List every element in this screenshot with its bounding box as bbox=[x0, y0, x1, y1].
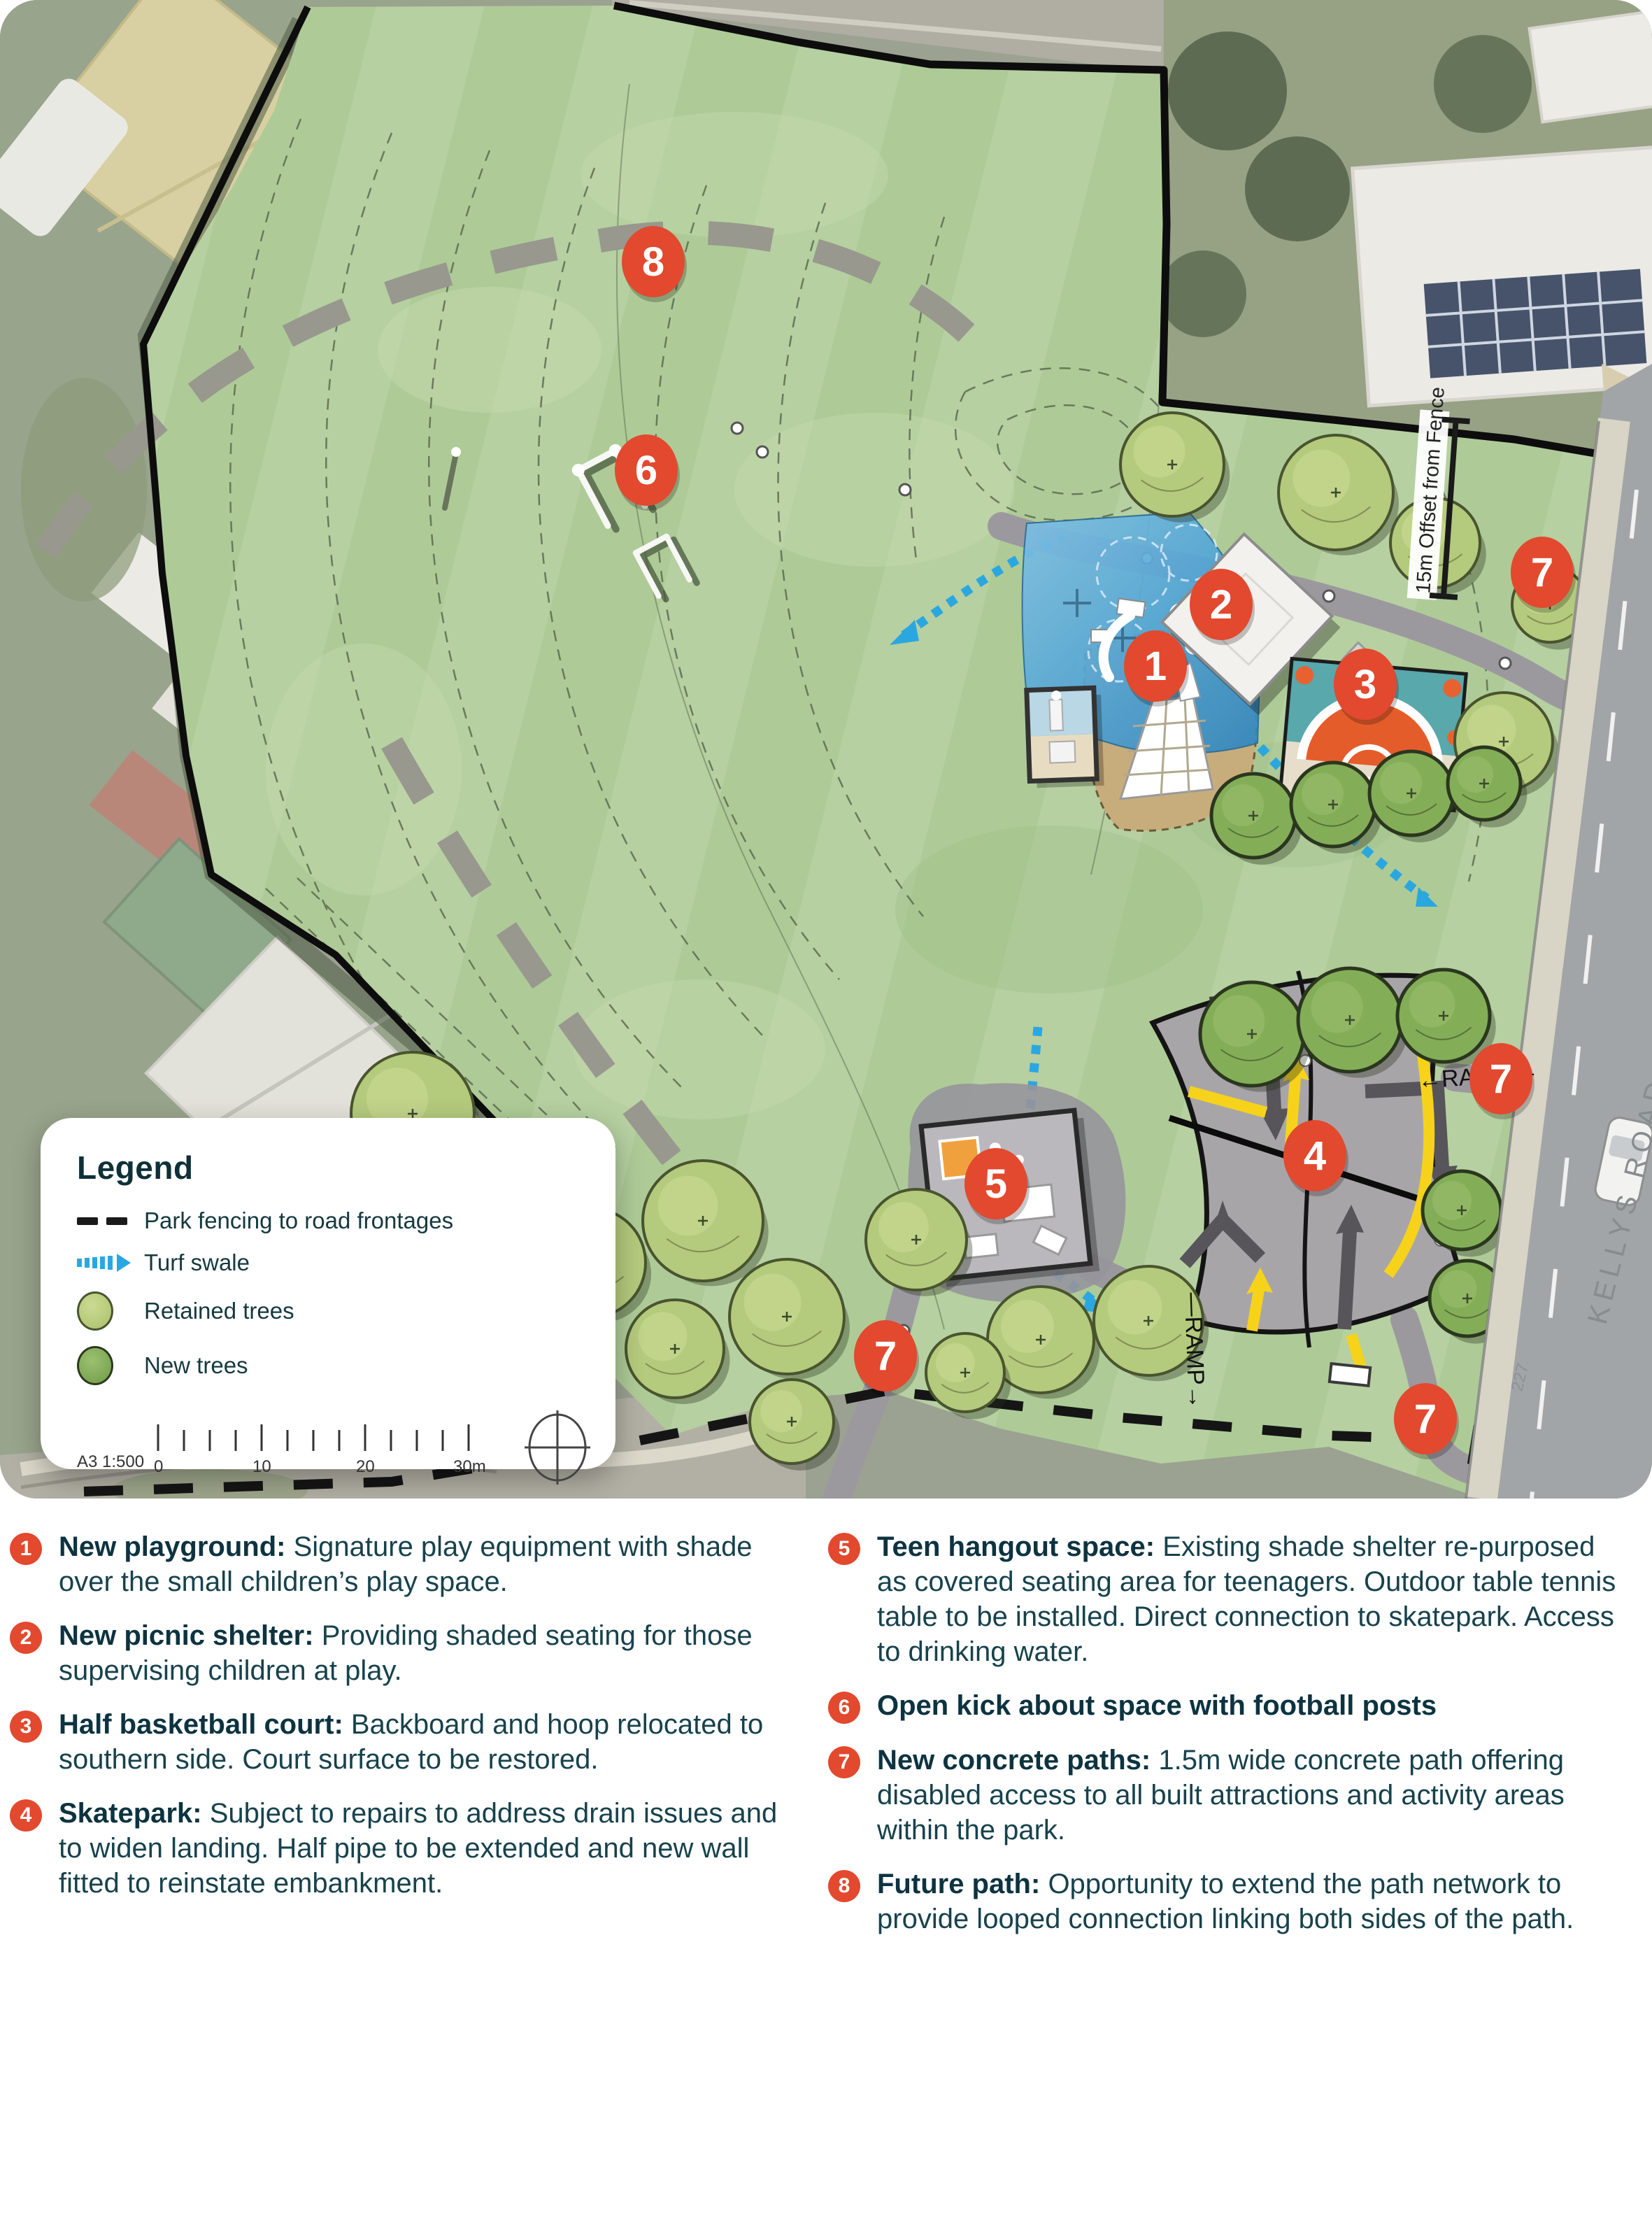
legend-item-swale: Turf swale bbox=[77, 1249, 615, 1276]
scale-ruler: 0 10 20 30m bbox=[151, 1422, 501, 1476]
key-item-6: 6 Open kick about space with football po… bbox=[828, 1688, 1642, 1724]
key-item-7: 7 New concrete paths: 1.5m wide concrete… bbox=[828, 1743, 1642, 1848]
north-compass-icon bbox=[519, 1409, 596, 1486]
key-text-4: Skatepark: Subject to repairs to address… bbox=[59, 1796, 800, 1901]
key-column-right: 5 Teen hangout space: Existing shade she… bbox=[817, 1529, 1642, 1955]
svg-text:0: 0 bbox=[154, 1457, 163, 1476]
key-item-5: 5 Teen hangout space: Existing shade she… bbox=[828, 1529, 1642, 1669]
scale-bar: A3 1:500 0 10 20 30m bbox=[77, 1409, 615, 1476]
key-item-4: 4 Skatepark: Subject to repairs to addre… bbox=[10, 1796, 817, 1901]
svg-text:10: 10 bbox=[252, 1457, 271, 1476]
swale-arrow-icon bbox=[77, 1254, 144, 1272]
key-bullet-1: 1 bbox=[10, 1533, 42, 1565]
svg-text:20: 20 bbox=[356, 1457, 375, 1476]
key-bullet-5: 5 bbox=[828, 1533, 860, 1565]
key-item-2: 2 New picnic shelter: Providing shaded s… bbox=[10, 1618, 817, 1688]
key-text-8: Future path: Opportunity to extend the p… bbox=[877, 1867, 1618, 1936]
legend-item-fencing: Park fencing to road frontages bbox=[77, 1207, 615, 1234]
key-text-1: New playground: Signature play equipment… bbox=[59, 1529, 800, 1599]
ramp-label-down: —RAMP→ bbox=[1179, 1292, 1210, 1409]
svg-text:3: 3 bbox=[1354, 662, 1376, 707]
existing-play-shelter bbox=[1027, 688, 1104, 788]
key-section: 1 New playground: Signature play equipme… bbox=[0, 1504, 1652, 1955]
key-bullet-4: 4 bbox=[10, 1799, 42, 1832]
svg-text:6: 6 bbox=[635, 448, 657, 493]
key-bullet-8: 8 bbox=[828, 1870, 860, 1902]
key-bullet-2: 2 bbox=[10, 1622, 42, 1654]
svg-text:5: 5 bbox=[985, 1161, 1007, 1207]
key-text-5: Teen hangout space: Existing shade shelt… bbox=[877, 1529, 1618, 1669]
svg-text:2: 2 bbox=[1210, 582, 1232, 628]
svg-text:7: 7 bbox=[1490, 1056, 1512, 1102]
svg-text:4: 4 bbox=[1304, 1133, 1326, 1179]
key-column-left: 1 New playground: Signature play equipme… bbox=[0, 1529, 817, 1955]
svg-text:8: 8 bbox=[642, 239, 664, 285]
masterplan-map: KELLYS ROAD 227 15m Offset from Fence ←R… bbox=[0, 0, 1652, 1499]
key-bullet-3: 3 bbox=[10, 1711, 42, 1743]
masterplan-page: KELLYS ROAD 227 15m Offset from Fence ←R… bbox=[0, 0, 1652, 2231]
fence-dash-icon bbox=[77, 1217, 144, 1225]
svg-text:7: 7 bbox=[874, 1333, 897, 1379]
svg-text:7: 7 bbox=[1414, 1396, 1437, 1442]
legend-item-retained-trees: Retained trees bbox=[77, 1291, 615, 1331]
key-item-8: 8 Future path: Opportunity to extend the… bbox=[828, 1867, 1642, 1936]
key-bullet-7: 7 bbox=[828, 1746, 860, 1778]
key-text-3: Half basketball court: Backboard and hoo… bbox=[59, 1707, 800, 1777]
svg-text:1: 1 bbox=[1144, 644, 1167, 689]
new-tree-icon bbox=[77, 1346, 144, 1385]
key-item-1: 1 New playground: Signature play equipme… bbox=[10, 1529, 817, 1599]
legend-item-new-trees: New trees bbox=[77, 1346, 615, 1385]
key-item-3: 3 Half basketball court: Backboard and h… bbox=[10, 1707, 817, 1777]
retained-tree-icon bbox=[77, 1291, 144, 1331]
legend-title: Legend bbox=[77, 1149, 615, 1187]
svg-text:7: 7 bbox=[1531, 550, 1553, 595]
key-text-2: New picnic shelter: Providing shaded sea… bbox=[59, 1618, 800, 1688]
key-text-6: Open kick about space with football post… bbox=[877, 1688, 1437, 1724]
key-text-7: New concrete paths: 1.5m wide concrete p… bbox=[877, 1743, 1618, 1848]
svg-text:30m: 30m bbox=[453, 1457, 486, 1476]
key-bullet-6: 6 bbox=[828, 1692, 860, 1724]
scale-sheet-label: A3 1:500 bbox=[77, 1452, 144, 1476]
map-legend: Legend Park fencing to road frontages Tu… bbox=[41, 1118, 615, 1469]
